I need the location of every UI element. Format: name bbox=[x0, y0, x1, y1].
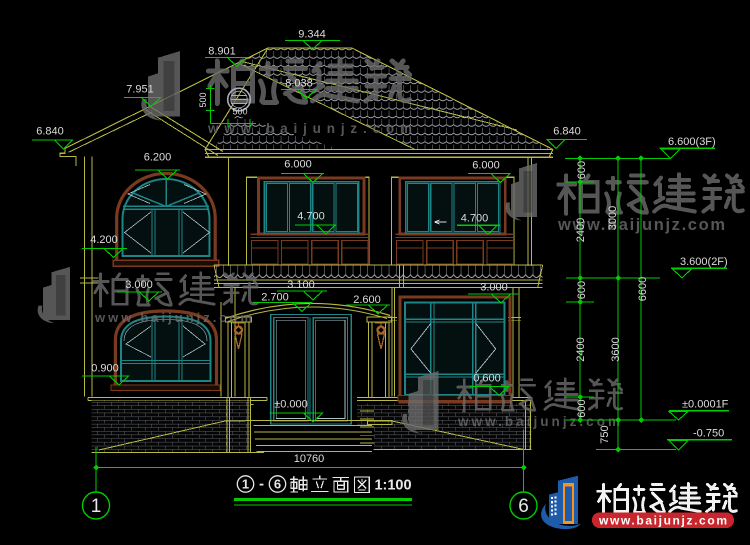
svg-text:1: 1 bbox=[91, 496, 102, 517]
svg-text:-0.750: -0.750 bbox=[693, 428, 724, 440]
svg-text:0.600: 0.600 bbox=[473, 373, 501, 385]
svg-text:9.344: 9.344 bbox=[298, 29, 326, 41]
svg-text:±0.0001F: ±0.0001F bbox=[682, 399, 729, 411]
svg-text:1: 1 bbox=[242, 477, 249, 492]
svg-text:2.700: 2.700 bbox=[261, 292, 289, 304]
svg-text:500: 500 bbox=[232, 107, 247, 117]
svg-text:1:100: 1:100 bbox=[374, 478, 411, 494]
svg-text:2400: 2400 bbox=[575, 218, 587, 242]
svg-text:±0.000: ±0.000 bbox=[274, 399, 308, 411]
svg-text:6: 6 bbox=[518, 496, 529, 517]
svg-text:8.038: 8.038 bbox=[285, 78, 313, 90]
svg-text:4.700: 4.700 bbox=[461, 213, 489, 225]
svg-text:6.000: 6.000 bbox=[472, 160, 500, 172]
svg-text:6: 6 bbox=[274, 477, 281, 492]
svg-text:3600: 3600 bbox=[610, 337, 622, 361]
svg-text:3.100: 3.100 bbox=[287, 279, 315, 291]
svg-text:3.000: 3.000 bbox=[480, 282, 508, 294]
svg-text:600: 600 bbox=[576, 281, 588, 299]
svg-text:750: 750 bbox=[599, 425, 611, 443]
svg-text:7.951: 7.951 bbox=[126, 84, 154, 96]
svg-text:6.200: 6.200 bbox=[144, 152, 172, 164]
svg-text:600: 600 bbox=[576, 161, 588, 179]
svg-text:3000: 3000 bbox=[607, 206, 619, 230]
svg-text:4.200: 4.200 bbox=[90, 234, 118, 246]
svg-text:500: 500 bbox=[198, 92, 208, 107]
svg-text:-: - bbox=[259, 476, 264, 493]
svg-text:6600: 6600 bbox=[637, 277, 649, 301]
svg-text:600: 600 bbox=[576, 399, 588, 417]
svg-text:6.000: 6.000 bbox=[284, 159, 312, 171]
svg-text:2400: 2400 bbox=[575, 337, 587, 361]
svg-text:10760: 10760 bbox=[294, 453, 325, 465]
svg-text:2.600: 2.600 bbox=[353, 294, 381, 306]
svg-text:6.840: 6.840 bbox=[553, 126, 581, 138]
svg-text:6.840: 6.840 bbox=[36, 126, 64, 138]
svg-text:3.000: 3.000 bbox=[125, 279, 153, 291]
svg-text:3.600(2F): 3.600(2F) bbox=[680, 256, 728, 268]
svg-text:6.600(3F): 6.600(3F) bbox=[668, 136, 716, 148]
svg-text:0.900: 0.900 bbox=[91, 363, 119, 375]
svg-text:4.700: 4.700 bbox=[297, 211, 325, 223]
svg-text:8.901: 8.901 bbox=[208, 46, 236, 58]
